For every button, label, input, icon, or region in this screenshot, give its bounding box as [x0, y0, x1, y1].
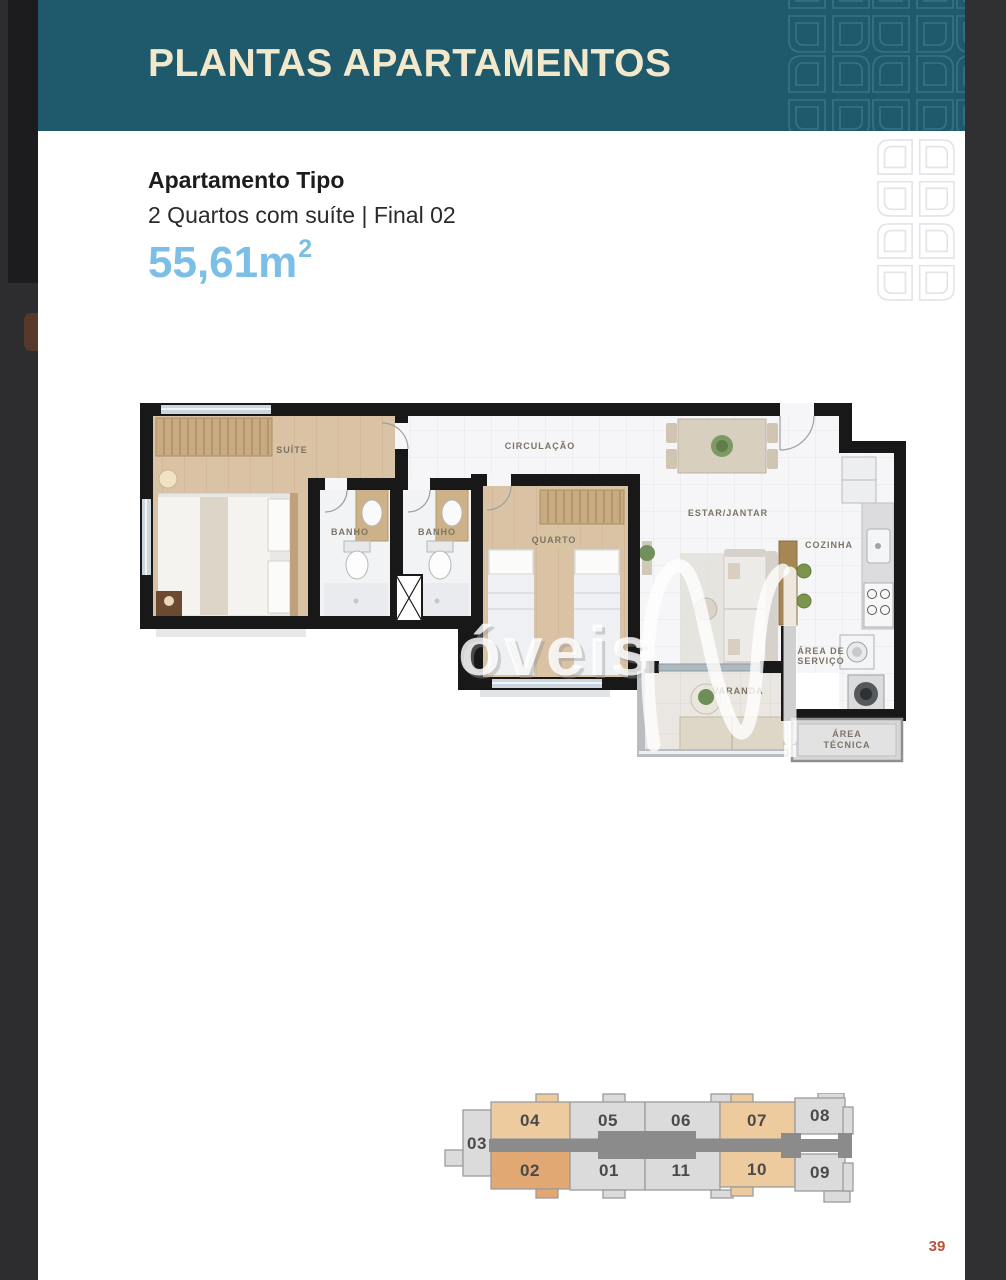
- key-plan-label-02: 02: [520, 1161, 540, 1180]
- page-title: PLANTAS APARTAMENTOS: [148, 42, 672, 86]
- plant: [639, 545, 655, 561]
- room-label-cozinha: COZINHA: [805, 540, 853, 550]
- key-plan-label-08: 08: [810, 1106, 830, 1125]
- room-label-circulacao: CIRCULAÇÃO: [505, 441, 576, 451]
- flower-pattern-light-icon: [872, 136, 964, 306]
- right-edge-strip: [965, 0, 1006, 1280]
- watermark-text: óveis: [458, 612, 652, 690]
- flower-pattern-teal-icon: [779, 0, 965, 131]
- toilet: [429, 551, 451, 579]
- left-edge-strip-dark: [8, 0, 38, 283]
- partial-app-icon: [24, 313, 38, 351]
- area-unit: m: [258, 238, 297, 287]
- key-plan-label-01: 01: [599, 1161, 619, 1180]
- key-plan-label-10: 10: [747, 1160, 767, 1179]
- area-value: 55,61: [148, 238, 258, 287]
- key-plan-label-07: 07: [747, 1111, 767, 1130]
- key-plan-label-05: 05: [598, 1111, 618, 1130]
- key-plan-label-04: 04: [520, 1111, 540, 1130]
- brochure-page: PLANTAS APARTAMENTOS Apartamento Tipo 2 …: [0, 0, 1006, 1280]
- suite-lamp: [159, 470, 177, 488]
- room-label-banho1: BANHO: [331, 527, 369, 537]
- room-label-quarto: QUARTO: [532, 535, 577, 545]
- room-label-suite: SUÍTE: [276, 445, 308, 455]
- sink: [442, 500, 462, 526]
- room-label-servico-1: ÁREA DE: [797, 646, 844, 656]
- room-label-tecnica-2: TÉCNICA: [824, 740, 871, 750]
- key-plan-label-09: 09: [810, 1163, 830, 1182]
- left-edge-strip: [0, 0, 38, 1280]
- apartment-description: 2 Quartos com suíte | Final 02: [148, 202, 456, 229]
- stool: [797, 564, 811, 578]
- shaft: [396, 575, 422, 621]
- room-label-tecnica-1: ÁREA: [832, 729, 862, 739]
- header-banner: PLANTAS APARTAMENTOS: [38, 0, 965, 131]
- floor-plan: SUÍTE BANHO BANHO QUARTO CIRCULAÇÃO ESTA…: [140, 403, 910, 795]
- apartment-area: 55,61m2: [148, 238, 311, 288]
- toilet: [346, 551, 368, 579]
- area-exponent: 2: [298, 235, 312, 263]
- sink: [362, 500, 382, 526]
- key-plan-label-03: 03: [467, 1134, 487, 1153]
- page-number: 39: [920, 1238, 954, 1255]
- key-plan-label-06: 06: [671, 1111, 691, 1130]
- room-label-estar: ESTAR/JANTAR: [688, 508, 768, 518]
- key-plan: 03 04 05 06 07 08 02 01 11 10 09: [443, 1093, 855, 1205]
- stool: [797, 594, 811, 608]
- room-label-servico-2: SERVIÇO: [797, 656, 844, 666]
- stove: [864, 583, 893, 627]
- room-label-banho2: BANHO: [418, 527, 456, 537]
- key-plan-label-11: 11: [672, 1161, 691, 1180]
- apartment-type-label: Apartamento Tipo: [148, 167, 344, 194]
- ledge: [156, 629, 306, 637]
